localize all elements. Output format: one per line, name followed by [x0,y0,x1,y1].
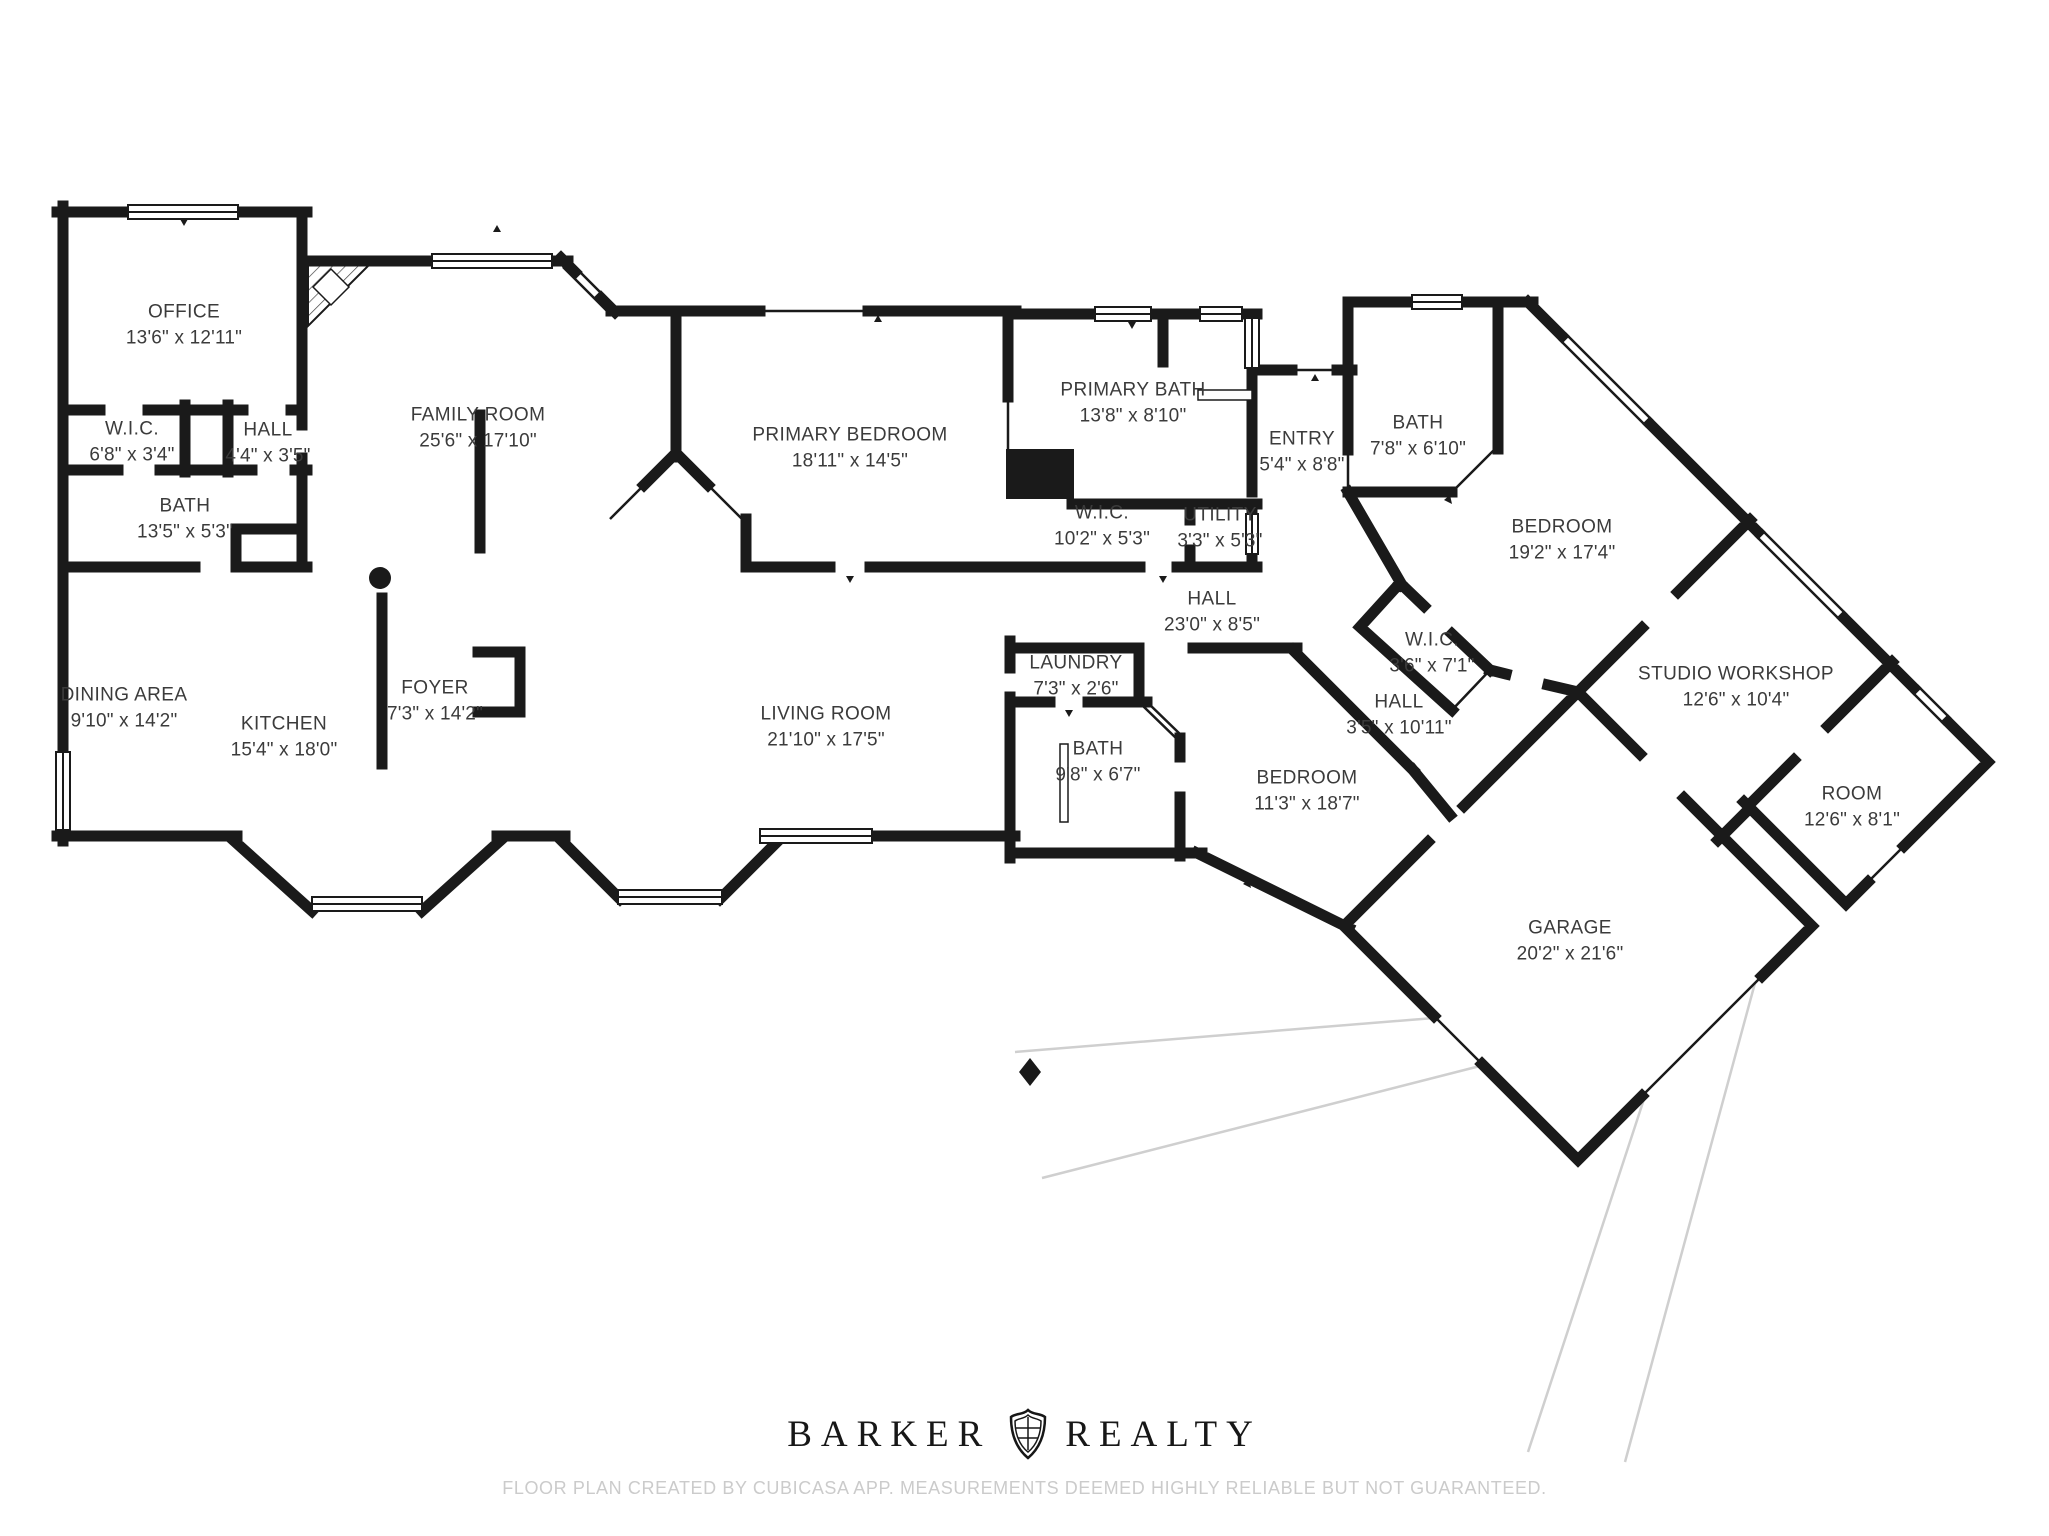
floorplan: OFFICE13'6" x 12'11"W.I.C.6'8" x 3'4"HAL… [0,0,2049,1536]
realty-crest-icon [1007,1408,1049,1460]
brand-logo: BARKER REALTY [787,1408,1262,1460]
gate-marker [1019,1058,1041,1086]
masonry-block [1006,449,1074,499]
floorplan-walls [0,0,2049,1536]
fixtures [1060,390,1252,822]
wall-segments [57,206,1988,1160]
brand-name-right: REALTY [1065,1413,1262,1456]
driveway-path [1015,983,1755,1462]
fireplace-hatch [308,264,370,326]
brand-name-left: BARKER [787,1413,991,1456]
footer: BARKER REALTY FLOOR PLAN CREATED BY CUBI… [0,1408,2049,1499]
column-marker [369,567,391,589]
disclaimer-text: FLOOR PLAN CREATED BY CUBICASA APP. MEAS… [502,1478,1547,1499]
